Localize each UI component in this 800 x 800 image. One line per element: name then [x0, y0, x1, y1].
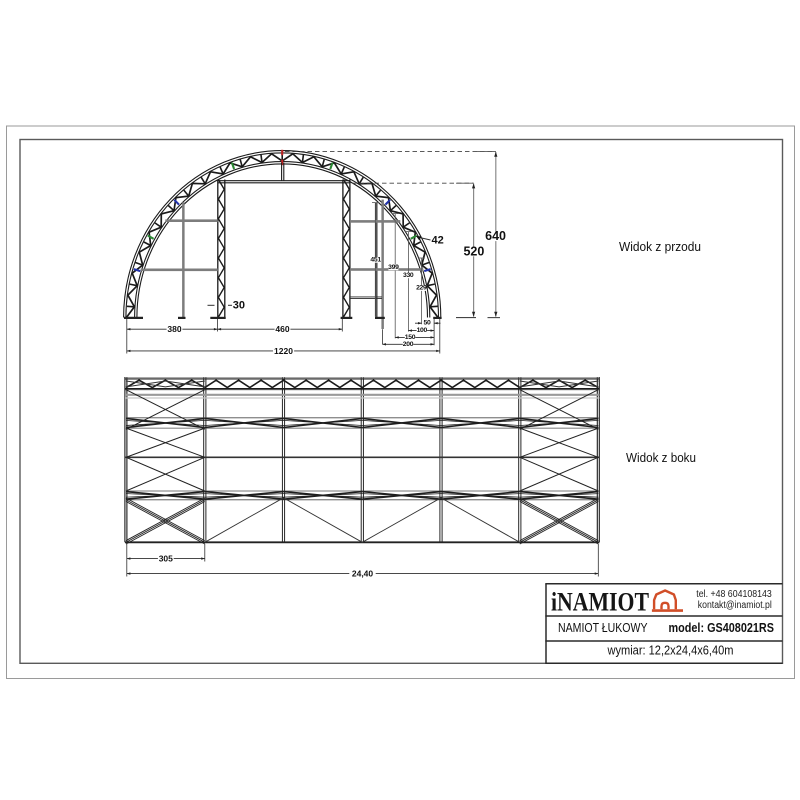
- svg-text:kontakt@inamiot.pl: kontakt@inamiot.pl: [698, 600, 772, 611]
- svg-text:520: 520: [463, 244, 484, 258]
- svg-text:640: 640: [485, 229, 506, 243]
- svg-text:Widok z przodu: Widok z przodu: [619, 239, 701, 254]
- svg-text:200: 200: [403, 341, 414, 348]
- svg-text:50: 50: [424, 320, 431, 327]
- svg-text:iNAMIOT: iNAMIOT: [551, 587, 649, 616]
- svg-text:399: 399: [388, 264, 399, 271]
- svg-text:330: 330: [403, 272, 414, 279]
- svg-text:Widok z boku: Widok z boku: [626, 450, 696, 465]
- svg-text:30: 30: [233, 300, 245, 312]
- svg-text:100: 100: [417, 327, 428, 334]
- svg-text:NAMIOT ŁUKOWY: NAMIOT ŁUKOWY: [558, 621, 648, 635]
- svg-text:380: 380: [167, 324, 181, 334]
- svg-text:wymiar: 12,2x24,4x6,40m: wymiar: 12,2x24,4x6,40m: [607, 642, 734, 657]
- svg-text:tel. +48 604108143: tel. +48 604108143: [696, 589, 772, 600]
- svg-text:1220: 1220: [274, 346, 293, 356]
- svg-text:42: 42: [432, 235, 444, 247]
- svg-text:model: GS408021RS: model: GS408021RS: [669, 621, 775, 635]
- svg-text:460: 460: [275, 324, 289, 334]
- svg-text:24,40: 24,40: [352, 569, 374, 579]
- svg-text:229: 229: [416, 285, 427, 292]
- svg-text:451: 451: [370, 256, 381, 263]
- svg-text:305: 305: [159, 554, 173, 564]
